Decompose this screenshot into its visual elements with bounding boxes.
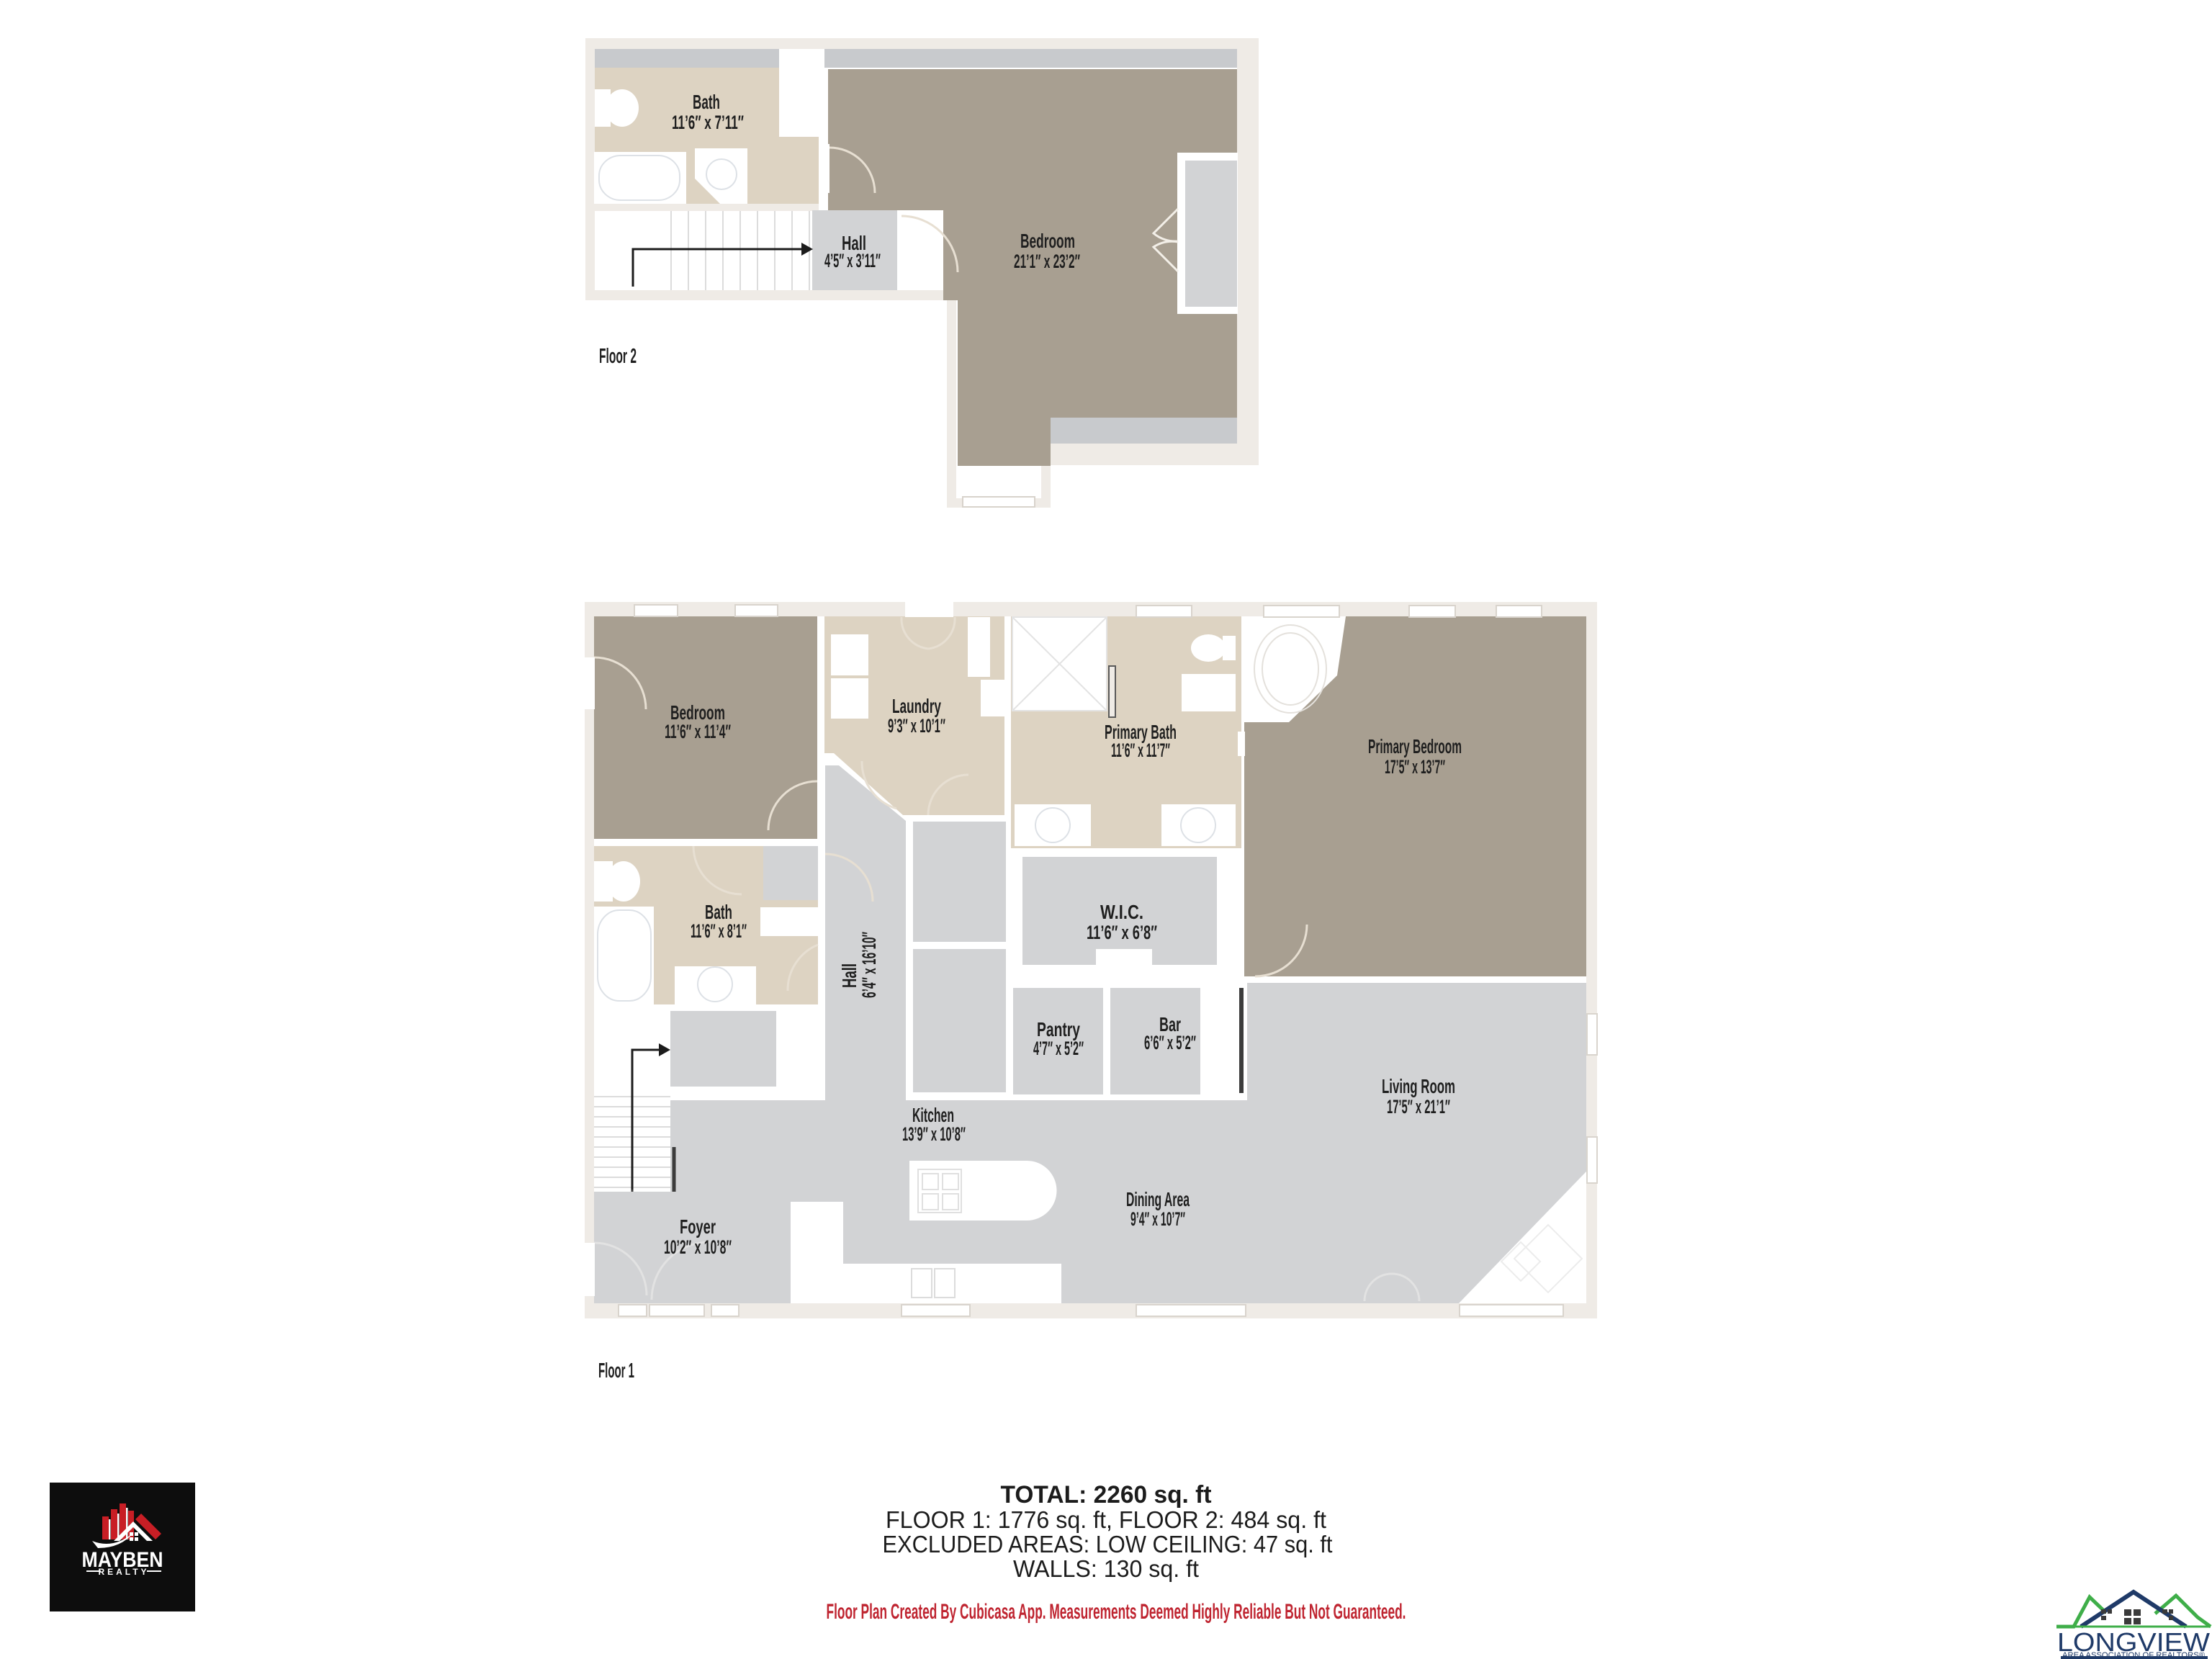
svg-text:WALLS: 130 sq. ft: WALLS: 130 sq. ft — [1013, 1555, 1199, 1582]
svg-text:13’9″ x 10’8″: 13’9″ x 10’8″ — [902, 1123, 966, 1145]
svg-text:11’6″ x 11’4″: 11’6″ x 11’4″ — [665, 721, 731, 742]
svg-text:Living Room: Living Room — [1382, 1075, 1455, 1097]
svg-text:Floor Plan Created By Cubicasa: Floor Plan Created By Cubicasa App. Meas… — [827, 1600, 1406, 1624]
svg-text:11’6″ x 7’11″: 11’6″ x 7’11″ — [672, 112, 744, 133]
svg-text:REALTY: REALTY — [98, 1567, 149, 1577]
svg-text:11’6″ x 8’1″: 11’6″ x 8’1″ — [691, 920, 747, 942]
svg-text:11’6″ x 6’8″: 11’6″ x 6’8″ — [1087, 922, 1157, 943]
svg-text:17’5″ x 13’7″: 17’5″ x 13’7″ — [1385, 756, 1445, 778]
svg-text:21’1″ x 23’2″: 21’1″ x 23’2″ — [1014, 251, 1080, 272]
svg-text:TOTAL: 2260 sq. ft: TOTAL: 2260 sq. ft — [1001, 1481, 1212, 1509]
svg-text:W.I.C.: W.I.C. — [1100, 901, 1143, 923]
svg-text:Dining Area: Dining Area — [1126, 1188, 1190, 1210]
svg-text:6’4″ x 16’10″: 6’4″ x 16’10″ — [858, 932, 880, 998]
svg-text:Floor 1: Floor 1 — [598, 1359, 634, 1382]
svg-text:EXCLUDED AREAS: LOW CEILING: 4: EXCLUDED AREAS: LOW CEILING: 47 sq. ft — [883, 1531, 1333, 1557]
svg-text:17’5″ x 21’1″: 17’5″ x 21’1″ — [1387, 1096, 1450, 1118]
svg-text:11’6″ x 11’7″: 11’6″ x 11’7″ — [1111, 739, 1170, 761]
svg-text:Laundry: Laundry — [892, 695, 941, 717]
svg-text:9’4″ x 10’7″: 9’4″ x 10’7″ — [1130, 1208, 1185, 1230]
svg-text:Hall: Hall — [838, 963, 860, 988]
svg-text:Bath: Bath — [693, 91, 720, 113]
svg-text:Foyer: Foyer — [680, 1215, 716, 1238]
svg-text:Floor 2: Floor 2 — [599, 345, 637, 368]
svg-text:4’5″ x 3’11″: 4’5″ x 3’11″ — [824, 250, 881, 271]
svg-text:4’7″ x 5’2″: 4’7″ x 5’2″ — [1033, 1038, 1084, 1059]
svg-text:FLOOR 1: 1776 sq. ft, FLOOR 2:: FLOOR 1: 1776 sq. ft, FLOOR 2: 484 sq. f… — [886, 1506, 1326, 1533]
svg-text:Bedroom: Bedroom — [1020, 230, 1075, 252]
svg-text:9’3″ x 10’1″: 9’3″ x 10’1″ — [888, 715, 945, 737]
svg-text:10’2″ x 10’8″: 10’2″ x 10’8″ — [664, 1236, 732, 1258]
svg-text:6’6″ x 5’2″: 6’6″ x 5’2″ — [1144, 1032, 1196, 1053]
svg-text:Primary Bedroom: Primary Bedroom — [1368, 735, 1462, 757]
